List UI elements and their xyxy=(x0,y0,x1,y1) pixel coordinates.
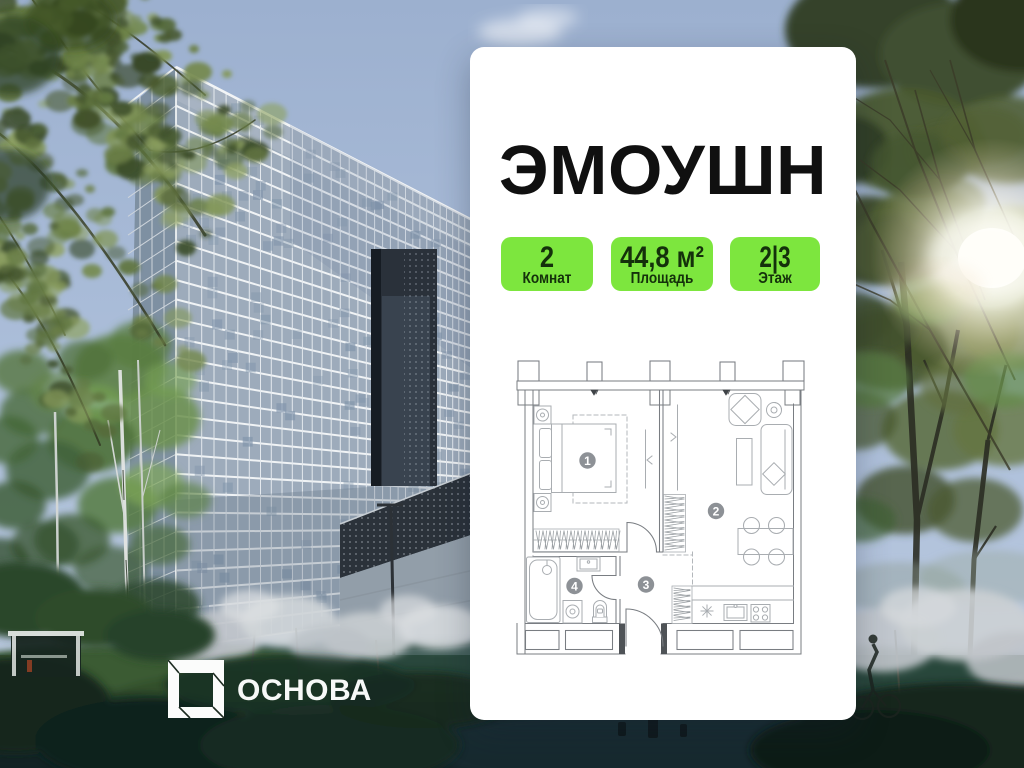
svg-text:4: 4 xyxy=(571,580,578,594)
svg-text:2: 2 xyxy=(713,505,720,519)
svg-text:1: 1 xyxy=(584,454,591,468)
svg-text:3: 3 xyxy=(643,578,650,592)
